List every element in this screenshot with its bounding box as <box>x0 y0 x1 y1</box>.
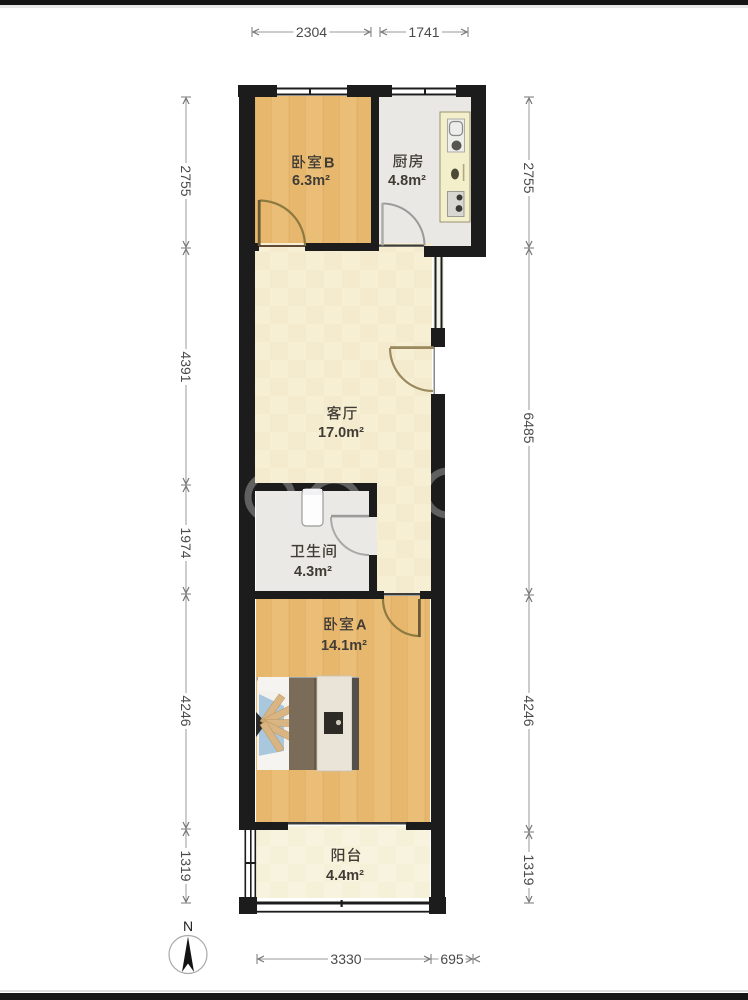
svg-text:1319: 1319 <box>521 854 537 885</box>
svg-text:2755: 2755 <box>178 165 194 196</box>
svg-text:A: A <box>356 618 367 634</box>
svg-text:2304: 2304 <box>296 24 327 40</box>
svg-text:6485: 6485 <box>521 412 537 443</box>
svg-text:N: N <box>183 918 193 934</box>
svg-text:6.3m²: 6.3m² <box>292 173 330 189</box>
svg-text:4.3m²: 4.3m² <box>294 564 332 580</box>
svg-text:695: 695 <box>440 951 464 967</box>
svg-text:1974: 1974 <box>178 527 194 558</box>
svg-text:4246: 4246 <box>521 695 537 726</box>
svg-text:1319: 1319 <box>178 850 194 881</box>
svg-text:2755: 2755 <box>521 162 537 193</box>
svg-text:14.1m²: 14.1m² <box>321 638 367 654</box>
svg-text:1741: 1741 <box>408 24 439 40</box>
svg-text:4.4m²: 4.4m² <box>326 868 364 884</box>
svg-text:B: B <box>324 156 334 172</box>
svg-text:4391: 4391 <box>178 351 194 382</box>
svg-text:4246: 4246 <box>178 695 194 726</box>
svg-text:3330: 3330 <box>330 951 361 967</box>
svg-text:17.0m²: 17.0m² <box>318 425 364 441</box>
svg-text:4.8m²: 4.8m² <box>388 173 426 189</box>
